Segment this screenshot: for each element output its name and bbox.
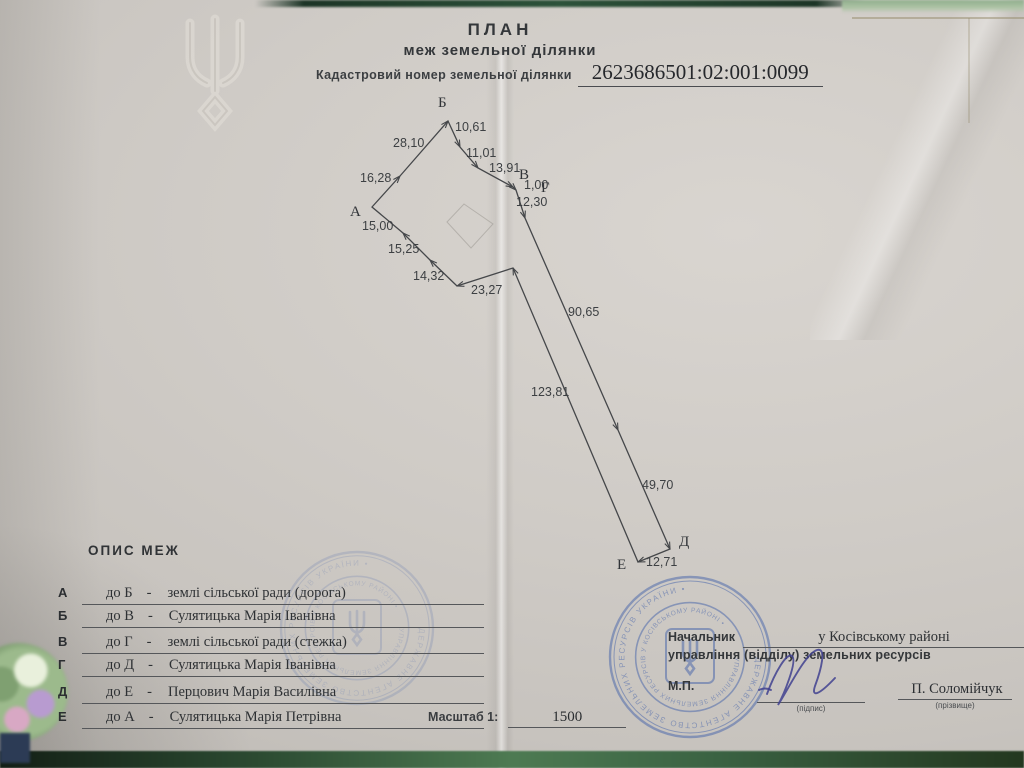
boundary-row: А до Б-землі сільської ради (дорога) <box>58 585 484 605</box>
name-line: (прізвище) <box>898 699 1012 710</box>
boundary-to: до Е <box>106 684 133 701</box>
boundary-sep: - <box>148 608 153 625</box>
boundary-sep: - <box>148 657 153 674</box>
fold-crease <box>486 55 514 768</box>
official-name: П. Соломійчук <box>902 681 1012 698</box>
boundary-desc: Сулятицька Марія Петрівна <box>170 709 342 726</box>
cadastral-number: 2623686501:02:001:0099 <box>578 60 823 87</box>
boundary-from: Г <box>58 657 82 672</box>
certificate-frame-line-vertical <box>968 18 970 123</box>
boundary-desc: Сулятицька Марія Іванівна <box>169 657 336 674</box>
boundary-from: Д <box>58 684 82 699</box>
background-object-dark <box>0 733 30 763</box>
fold-crease-diagonal <box>810 0 1024 340</box>
boundaries-heading: ОПИС МЕЖ <box>88 543 180 558</box>
boundary-row: В до Г-землі сільської ради (стежка) <box>58 634 484 654</box>
signature-ink <box>745 638 885 713</box>
certificate-frame-line <box>852 17 1024 19</box>
boundary-row: Б до В-Сулятицька Марія Іванівна <box>58 608 484 628</box>
scale-value: 1500 <box>508 709 626 728</box>
boundary-from: Б <box>58 608 82 623</box>
boundary-row: Г до Д-Сулятицька Марія Іванівна <box>58 657 484 677</box>
boundary-to: до Г <box>106 634 133 651</box>
boundary-to: до Д <box>106 657 134 674</box>
document-photo: { "header": { "title": "ПЛАН", "subtitle… <box>0 0 1024 768</box>
document-title-block: ПЛАН меж земельної ділянки <box>330 20 670 59</box>
page-title: ПЛАН <box>330 20 670 40</box>
boundary-sep: - <box>149 709 154 726</box>
boundary-desc: Перцович Марія Василівна <box>168 684 336 701</box>
trident-watermark-icon <box>160 5 270 135</box>
scale-row: Масштаб 1: 1500 <box>428 709 626 728</box>
page-subtitle: меж земельної ділянки <box>330 42 670 59</box>
cadastral-number-row: Кадастровий номер земельної ділянки 2623… <box>316 60 823 87</box>
seal-place-label: М.П. <box>668 679 694 693</box>
boundary-to: до В <box>106 608 134 625</box>
boundary-row: Е до А-Сулятицька Марія Петрівна <box>58 709 484 729</box>
boundary-from: Е <box>58 709 82 724</box>
boundary-to: до А <box>106 709 135 726</box>
boundary-desc: землі сільської ради (стежка) <box>167 634 346 651</box>
name-caption: (прізвище) <box>898 701 1012 710</box>
boundary-from: А <box>58 585 82 600</box>
cadastral-label: Кадастровий номер земельної ділянки <box>316 68 572 82</box>
scale-label: Масштаб 1: <box>428 710 498 724</box>
boundary-from: В <box>58 634 82 649</box>
official-title-label: Начальник <box>668 630 735 644</box>
boundary-to: до Б <box>106 585 133 602</box>
table-background-top-right <box>842 0 1024 13</box>
table-background-top <box>255 0 865 7</box>
boundary-sep: - <box>147 634 152 651</box>
boundary-sep: - <box>147 585 152 602</box>
boundary-sep: - <box>147 684 152 701</box>
boundary-desc: Сулятицька Марія Іванівна <box>169 608 336 625</box>
boundary-desc: землі сільської ради (дорога) <box>167 585 345 602</box>
table-background-bottom <box>0 751 1024 768</box>
boundary-row: Д до Е-Перцович Марія Василівна <box>58 684 484 704</box>
